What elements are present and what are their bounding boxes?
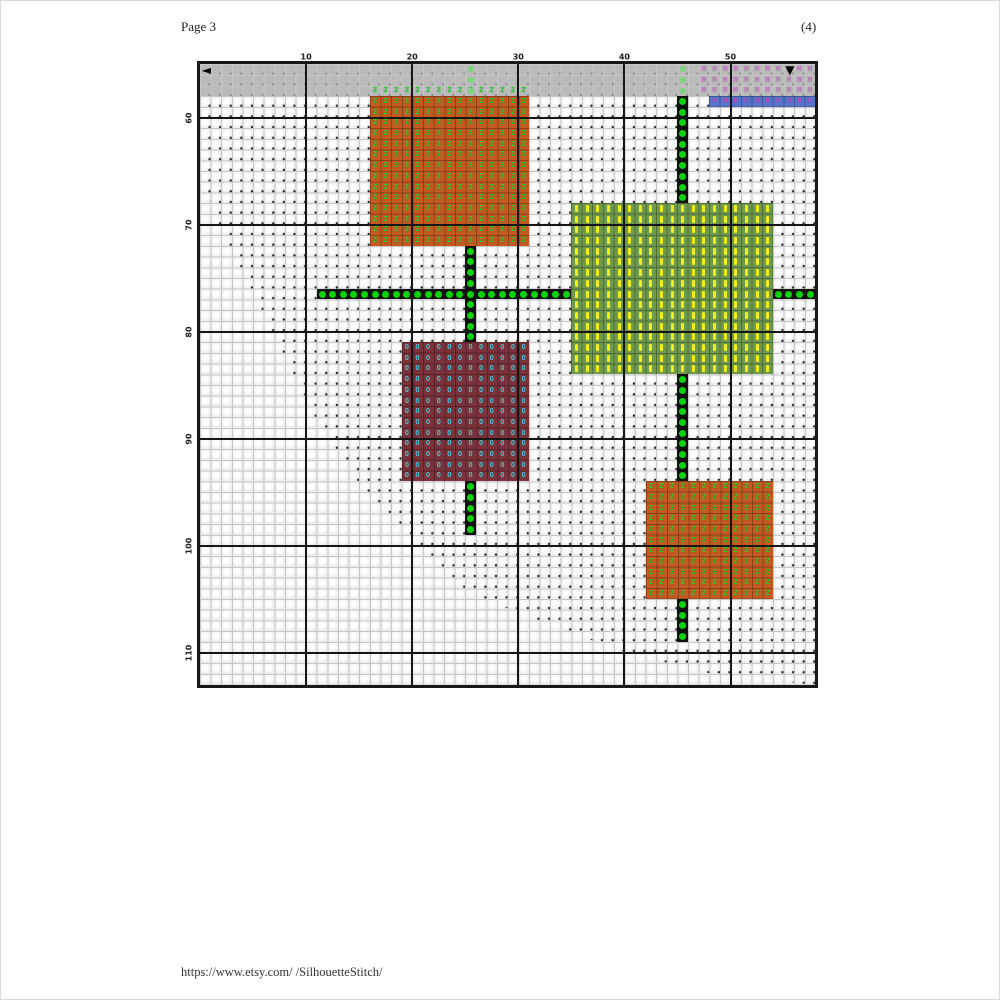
column-number-label: 50 — [725, 53, 736, 62]
down-arrow-marker: ▼ — [782, 62, 799, 79]
row-number-label: 60 — [185, 112, 194, 123]
row-number-label: 70 — [185, 219, 194, 230]
center-markers: ◄▼ — [200, 64, 815, 685]
pdf-page: Page 3 (4) ZZZZZZZZZZZZZZZZZZZZZZZZZZZZZ… — [0, 0, 1000, 1000]
page-number-label: Page 3 — [181, 19, 216, 35]
row-number-label: 90 — [185, 433, 194, 444]
row-number-label: 80 — [185, 326, 194, 337]
row-number-label: 100 — [185, 537, 194, 554]
row-number-label: 110 — [185, 644, 194, 661]
left-arrow-marker: ◄ — [198, 62, 215, 79]
footer-url-link[interactable]: https://www.etsy.com/ /SilhouetteStitch/ — [181, 965, 383, 980]
column-number-label: 10 — [301, 53, 312, 62]
page-count-label: (4) — [801, 19, 816, 35]
column-number-label: 20 — [407, 53, 418, 62]
stitch-chart-grid: ZZZZZZZZZZZZZZZZZZZZZZZZZZZZZZZZZZZZZZZZ… — [197, 61, 818, 688]
column-number-label: 30 — [513, 53, 524, 62]
column-number-label: 40 — [619, 53, 630, 62]
